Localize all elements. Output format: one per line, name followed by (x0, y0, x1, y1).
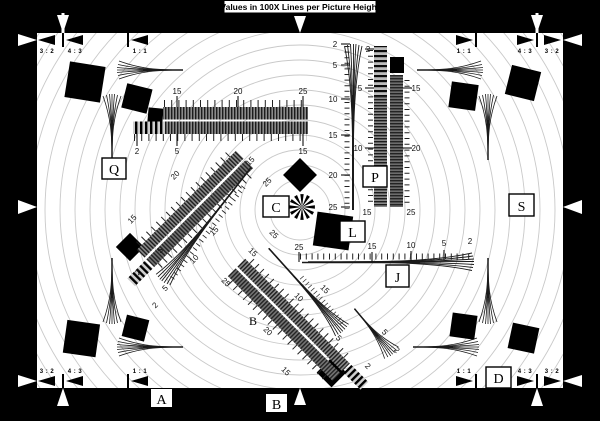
j-2: 2 (468, 237, 473, 246)
v-wedge-20: 20 (329, 171, 338, 180)
ratio-32-tl: 3 : 2 (40, 49, 55, 55)
p-right-20: 20 (412, 144, 421, 153)
label-s: S (518, 200, 526, 215)
p-left-2: 2 (366, 45, 371, 54)
ratio-32-br: 3 : 2 (545, 369, 560, 375)
v-wedge-2: 2 (333, 40, 338, 49)
page-title: Values in 100X Lines per Picture Height (220, 2, 379, 12)
label-d: D (493, 372, 503, 387)
label-q: Q (109, 163, 119, 178)
ratio-43-tr: 4 : 3 (518, 49, 533, 55)
ratio-43-bl: 4 : 3 (68, 369, 83, 375)
v-wedge-15: 15 (329, 131, 338, 140)
ratio-11-tl: 1 : 1 (133, 49, 148, 55)
label-l: L (348, 226, 357, 241)
chart-canvas: 15 20 25 2 5 15 2 5 10 15 20 25 (0, 0, 600, 421)
label-c: C (271, 201, 280, 216)
ratio-43-tl: 4 : 3 (68, 49, 83, 55)
v-wedge-10: 10 (329, 95, 338, 104)
h-top-20: 20 (234, 87, 243, 96)
h-bottom-15: 15 (299, 147, 308, 156)
label-j: J (395, 271, 401, 286)
ratio-32-bl: 3 : 2 (40, 369, 55, 375)
ratio-11-br: 1 : 1 (457, 369, 472, 375)
ratio-32-tr: 3 : 2 (545, 49, 560, 55)
h-bottom-2: 2 (135, 147, 140, 156)
iso-resolution-test-chart: 15 20 25 2 5 15 2 5 10 15 20 25 (0, 0, 600, 421)
j-25: 25 (295, 243, 304, 252)
ratio-43-br: 4 : 3 (518, 369, 533, 375)
ratio-11-tr: 1 : 1 (457, 49, 472, 55)
p-right-15: 15 (412, 84, 421, 93)
label-b: B (272, 398, 281, 413)
p-left-5: 5 (358, 84, 363, 93)
v-wedge-5: 5 (333, 61, 338, 70)
diag-b-letter: B (249, 314, 257, 328)
p-left-10: 10 (354, 144, 363, 153)
label-a: A (156, 393, 167, 408)
j-5: 5 (442, 239, 447, 248)
title-plate: Values in 100X Lines per Picture Height (220, 1, 379, 14)
h-bottom-5: 5 (175, 147, 180, 156)
j-15: 15 (368, 242, 377, 251)
ratio-11-bl: 1 : 1 (133, 369, 148, 375)
p-right-25: 25 (407, 208, 416, 217)
j-10: 10 (407, 241, 416, 250)
label-p: P (371, 171, 379, 186)
v-wedge-25: 25 (329, 203, 338, 212)
h-top-25: 25 (299, 87, 308, 96)
p-left-15: 15 (363, 208, 372, 217)
h-top-15: 15 (173, 87, 182, 96)
